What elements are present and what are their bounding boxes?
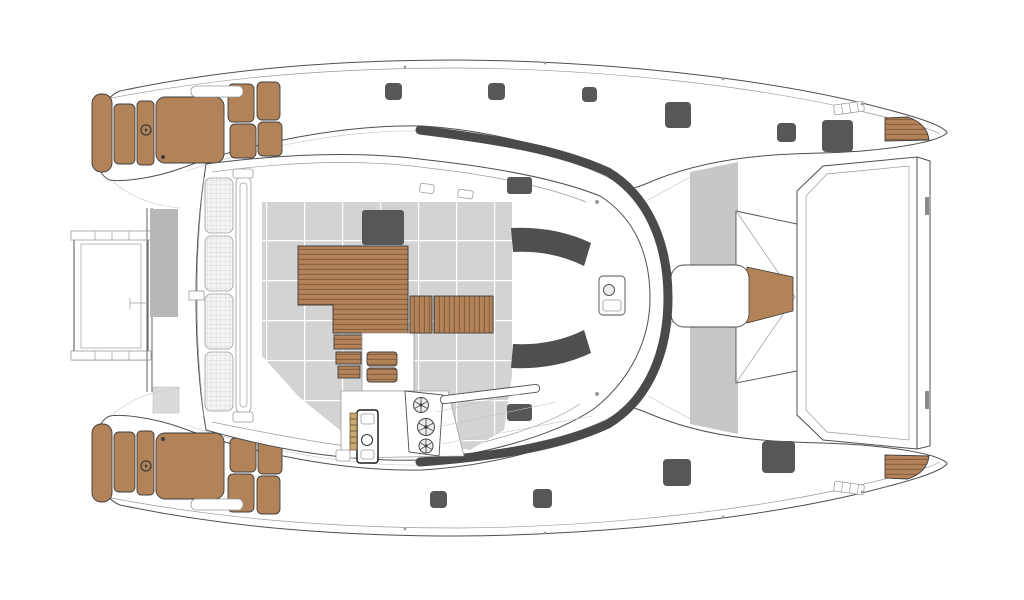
step [338,366,360,378]
teak-bench [410,296,432,333]
sunpad-cushion [230,124,256,158]
throttle-panel [361,450,374,459]
aft-deck [648,157,930,449]
roof-clamp-fitting [458,189,474,199]
sunpad-cushion [230,438,256,472]
bow-platform-cap-bottom [71,351,151,360]
quilted-cushion [205,236,233,291]
deck-hatch [582,87,597,102]
quilted-cushion [205,178,233,233]
deck-hatch [385,83,402,100]
sunpad-cushion [156,97,224,163]
saloon-pod [189,130,668,463]
foredeck [71,182,180,414]
deck-hatch [488,83,505,100]
sunpad-cushion [114,104,135,164]
swim-platform [797,157,930,449]
deck-hatch [822,120,853,152]
deck-filler-dot [145,465,148,468]
roof-hatch-small [507,404,532,421]
quilted-cushion [205,352,233,411]
helm-step [336,450,350,461]
teak-bench [434,296,493,333]
sunpad-cushion [92,94,112,172]
anchor-locker-slot [191,499,243,510]
winch [419,439,433,453]
step [336,352,361,364]
deck-hatch [533,489,552,508]
teak-stool [367,352,397,366]
deck-hatch [777,123,796,142]
step [334,335,362,349]
bow-platform-frame [74,232,148,360]
sunpad-cushion [114,432,135,492]
deck-filler-dot [145,129,148,132]
deck-hatch [430,491,447,508]
winch [418,419,435,436]
deck-plug-dot [161,155,165,159]
rope-ladder-fitting [350,413,357,450]
deck-hatch [663,459,691,486]
bow-platform [71,231,151,360]
deck-hatch [762,441,795,473]
sunpad-cushion [137,101,154,165]
roof-clamp-fitting [419,183,434,194]
sunpad-cushion [257,476,280,514]
pod-side-cleat [189,291,204,300]
table-steps [334,335,362,378]
sunpad-cushion [92,424,112,502]
hatch-track-endcap [233,169,253,178]
sunpad-cushion [156,433,224,499]
deck-hatch [665,102,691,128]
aft-bench [671,265,749,327]
roof-hatch-small [507,177,532,194]
deck-plug-dot [161,437,165,441]
compass-icon [604,285,615,296]
throttle-panel [361,414,374,424]
nav-pod-panel [603,300,621,311]
platform-handle [925,391,929,409]
hatch-track-rail [236,176,251,414]
forward-beam-locker [150,209,178,317]
throttle-console [357,410,378,463]
sunpad-cushion [137,431,154,495]
quilted-sunpad [205,178,233,411]
winch [414,398,429,413]
sunpad-cushion [258,122,282,156]
forward-deck-hatch-panel [153,387,179,413]
bow-platform-cap-top [71,231,151,240]
anchor-locker-slot [191,86,243,97]
roof-screw [595,392,599,396]
sunpad-cushion [257,82,280,120]
catamaran-deck-plan [0,0,1024,600]
hatch-track-endcap [233,412,253,422]
hatch-track [233,169,253,422]
nav-pod-console [599,276,625,315]
teak-stool [367,368,397,382]
deck-plan-stage [0,0,1024,600]
platform-handle [925,197,929,215]
quilted-cushion [205,294,233,349]
galley-block [362,210,404,245]
swim-platform-outer [797,157,917,449]
roof-screw [595,200,599,204]
